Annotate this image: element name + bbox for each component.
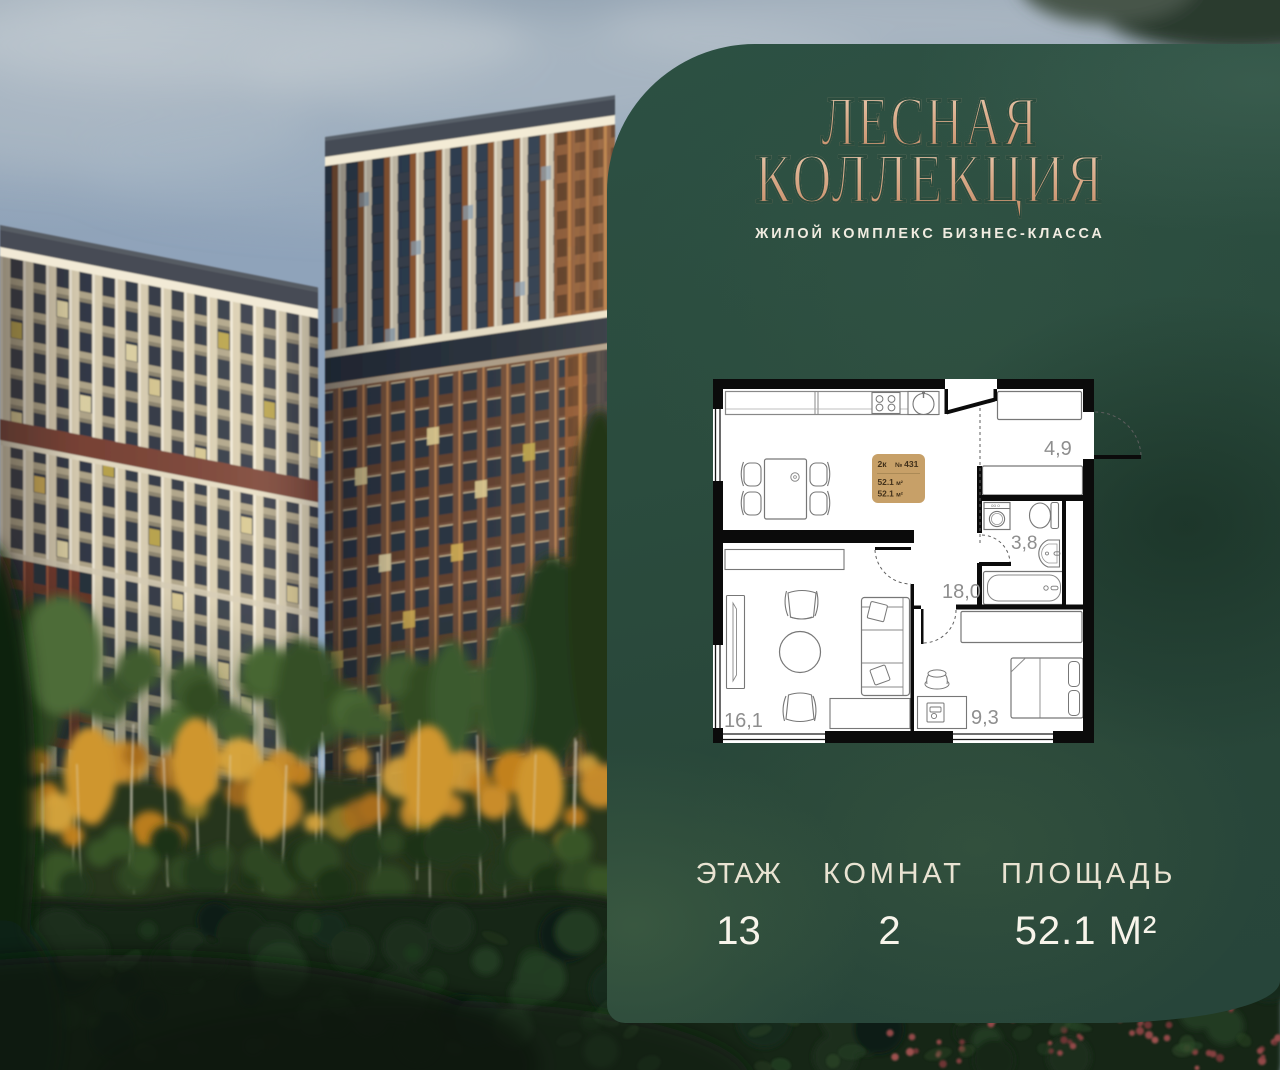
svg-text:2к: 2к — [878, 459, 888, 469]
svg-text:3,8: 3,8 — [1011, 533, 1037, 554]
svg-text:4,9: 4,9 — [1044, 438, 1072, 460]
svg-text:16,1: 16,1 — [724, 710, 763, 732]
svg-text:18,0: 18,0 — [942, 581, 981, 603]
svg-text:oo o: oo o — [991, 503, 1000, 508]
svg-text:9,3: 9,3 — [971, 707, 999, 729]
